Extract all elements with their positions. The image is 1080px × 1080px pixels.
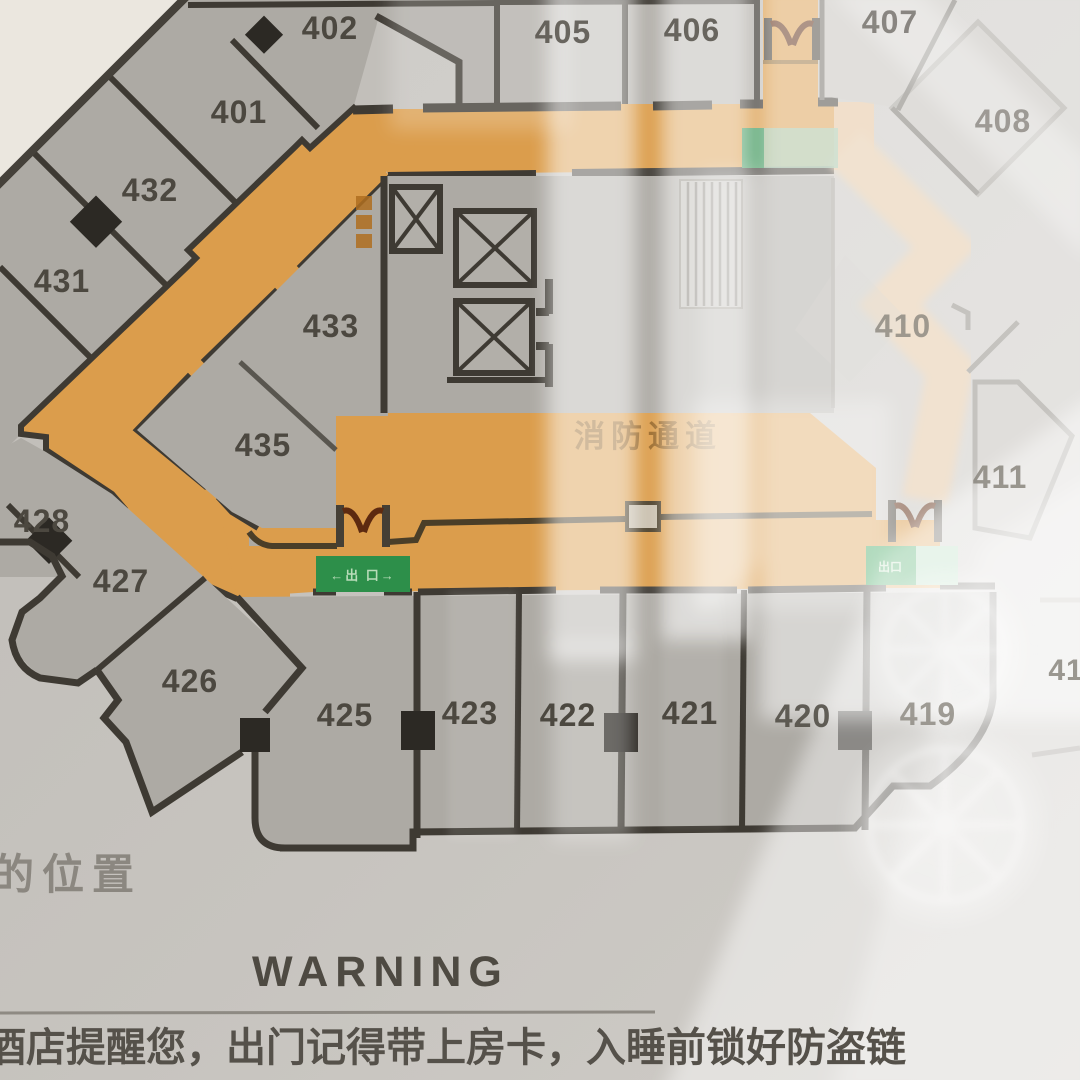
svg-text:422: 422 [540, 697, 596, 733]
svg-text:411: 411 [973, 459, 1028, 495]
svg-text:435: 435 [235, 427, 291, 463]
svg-text:的位置: 的位置 [0, 851, 142, 898]
svg-text:402: 402 [302, 10, 358, 46]
svg-text:401: 401 [211, 94, 267, 130]
svg-text:421: 421 [662, 695, 718, 731]
svg-text:433: 433 [303, 308, 359, 344]
svg-text:419: 419 [900, 696, 956, 732]
svg-text:431: 431 [34, 263, 90, 299]
svg-text:酒店提醒您，出门记得带上房卡，入睡前锁好防盗链: 酒店提醒您，出门记得带上房卡，入睡前锁好防盗链 [0, 1026, 906, 1070]
svg-text:425: 425 [317, 697, 373, 733]
svg-text:428: 428 [14, 503, 70, 539]
svg-text:410: 410 [875, 308, 931, 344]
svg-text:407: 407 [862, 4, 918, 40]
svg-text:420: 420 [775, 698, 831, 734]
svg-text:408: 408 [975, 103, 1031, 139]
svg-text:WARNING: WARNING [252, 948, 509, 996]
svg-text:426: 426 [162, 663, 218, 699]
svg-text:427: 427 [93, 563, 149, 599]
svg-text:432: 432 [122, 172, 178, 208]
svg-text:41: 41 [1048, 654, 1080, 687]
svg-text:←出 口→: ←出 口→ [330, 568, 396, 583]
svg-text:423: 423 [442, 695, 498, 731]
svg-text:405: 405 [535, 14, 591, 50]
svg-text:406: 406 [664, 12, 720, 48]
